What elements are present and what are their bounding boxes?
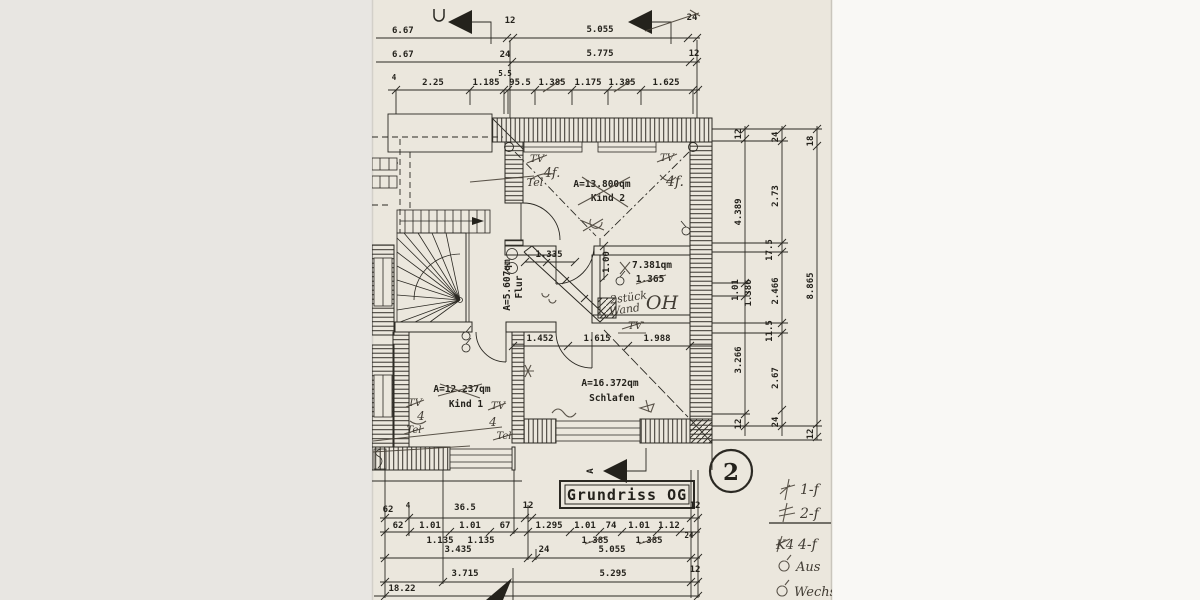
note-tel: Tel — [406, 425, 421, 436]
note-4f: 4f. — [665, 174, 684, 190]
dim-label: 12 — [806, 429, 816, 440]
dim-label: 1.335 — [535, 250, 562, 260]
dim-label: 62 — [383, 505, 394, 515]
dim-label: 95.5 — [509, 78, 531, 88]
floor-plan-drawing: 6.67 12 5.055 24 6.67 24 5.775 12 4 2.25… — [0, 0, 1200, 600]
note-tel: Tel — [527, 176, 544, 189]
dim-label: 12 — [523, 501, 534, 511]
dim-label: 12 — [690, 501, 701, 511]
note-4f: 4f. — [543, 166, 561, 181]
room-name-kind1: Kind 1 — [449, 399, 484, 410]
legend-label-2: 2-f — [799, 506, 822, 522]
legend-prefix-3: K4 — [775, 538, 794, 553]
dim-label: 62 — [393, 521, 404, 531]
dim-label: 12 — [734, 129, 744, 140]
legend-label-1: 1-f — [800, 482, 822, 498]
dim-label: 1.175 — [574, 78, 601, 88]
dim-label: 8.865 — [806, 272, 816, 299]
section-letter: A — [586, 468, 596, 474]
dim-label: 6.67 — [392, 26, 414, 36]
dim-label: 2.466 — [771, 277, 781, 304]
dim-label: 1.185 — [472, 78, 499, 88]
dim-label: 1.01 — [731, 279, 741, 301]
room-name-schlafen: Schlafen — [589, 393, 635, 404]
dim-label: 1.01 — [419, 521, 441, 531]
room-name-flur: Flur — [514, 275, 525, 298]
dim-label: 1.625 — [652, 78, 679, 88]
dim-label: 1.452 — [526, 334, 553, 344]
room-area-flur: A=5.607qm — [502, 259, 513, 311]
left-margin — [0, 0, 372, 600]
wall-kind2-left-b — [505, 240, 523, 246]
dim-label: 67 — [500, 521, 511, 531]
dim-label: 5.775 — [586, 49, 613, 59]
note-oh: OH — [646, 292, 679, 314]
dim-label: 1.01 — [628, 521, 650, 531]
dim-label: 3.435 — [444, 545, 471, 555]
wall-schlafen-bottom-b — [640, 419, 690, 443]
right-margin — [832, 0, 1200, 600]
dim-label: 5.295 — [599, 569, 626, 579]
note-4: 4 — [416, 409, 425, 423]
dim-label: 2.67 — [771, 367, 781, 389]
room-area-bad: 7.381qm — [632, 260, 672, 271]
note-tv: TV — [628, 321, 644, 332]
dim-label: 12 — [734, 419, 744, 430]
note-tv: TV — [491, 401, 507, 412]
dim-label: 5.5 — [498, 69, 512, 78]
dim-label: 24 — [771, 416, 781, 427]
dim-label: 17.5 — [765, 239, 775, 261]
wall-south-a — [395, 322, 472, 332]
dim-label: 1.12 — [658, 521, 680, 531]
dim-label: 5.055 — [586, 25, 613, 35]
note-tv: TV — [660, 153, 676, 164]
room-area-schlafen: A=16.372qm — [581, 378, 638, 389]
dim-label: 3.715 — [451, 569, 478, 579]
dim-label: 11.5 — [765, 320, 775, 342]
legend-label-4: Aus — [795, 560, 821, 575]
dim-label: 1.01 — [459, 521, 481, 531]
dim-label: 12 — [505, 16, 516, 26]
dim-label: 74 — [606, 521, 617, 531]
wall-kind1-right — [512, 332, 524, 443]
note-tv: TV — [530, 154, 546, 165]
dim-label: 1.01 — [574, 521, 596, 531]
wall-kind1-bottom-a — [372, 447, 450, 470]
dim-label: 1.615 — [583, 334, 610, 344]
floor-plan-photo: 6.67 12 5.055 24 6.67 24 5.775 12 4 2.25… — [0, 0, 1200, 600]
dim-label: 36.5 — [454, 503, 476, 513]
dim-label: 4 — [406, 501, 411, 510]
dim-label: 24 — [687, 13, 698, 23]
wall-right — [690, 142, 712, 443]
dim-label: 24 — [539, 545, 550, 555]
dim-label: 24 — [771, 131, 781, 142]
note-tv: TV — [408, 398, 424, 409]
dim-label: 1.295 — [535, 521, 562, 531]
dim-label: 4 — [392, 73, 397, 82]
note-tel: Tel — [496, 431, 511, 442]
dim-label: 4.389 — [734, 198, 744, 225]
wall-kind1-bottom-b — [512, 447, 515, 470]
dim-label: 12 — [690, 565, 701, 575]
drawing-title: Grundriss OG — [567, 486, 687, 504]
wall-south-b — [506, 322, 556, 332]
dim-label: 3.266 — [734, 346, 744, 373]
dim-label: 12 — [689, 49, 700, 59]
dim-label: 24 — [684, 531, 694, 540]
dim-label: 1.386 — [744, 279, 754, 306]
dim-label: 1.988 — [643, 334, 670, 344]
sheet-number: 2 — [723, 459, 739, 486]
wall-schlafen-bottom-a — [524, 419, 556, 443]
dim-label: 2.25 — [422, 78, 444, 88]
dim-label: 24 — [500, 50, 511, 60]
dim-label: 1.00 — [602, 251, 612, 273]
dim-label: 5.055 — [598, 545, 625, 555]
wall-top — [492, 118, 712, 142]
dim-label: 18 — [806, 136, 816, 147]
dim-label: 6.67 — [392, 50, 414, 60]
legend-label-3: 4-f — [797, 537, 820, 553]
dim-label: 18.22 — [388, 584, 415, 594]
dim-label: 2.73 — [771, 185, 781, 207]
note-4: 4 — [488, 415, 497, 429]
